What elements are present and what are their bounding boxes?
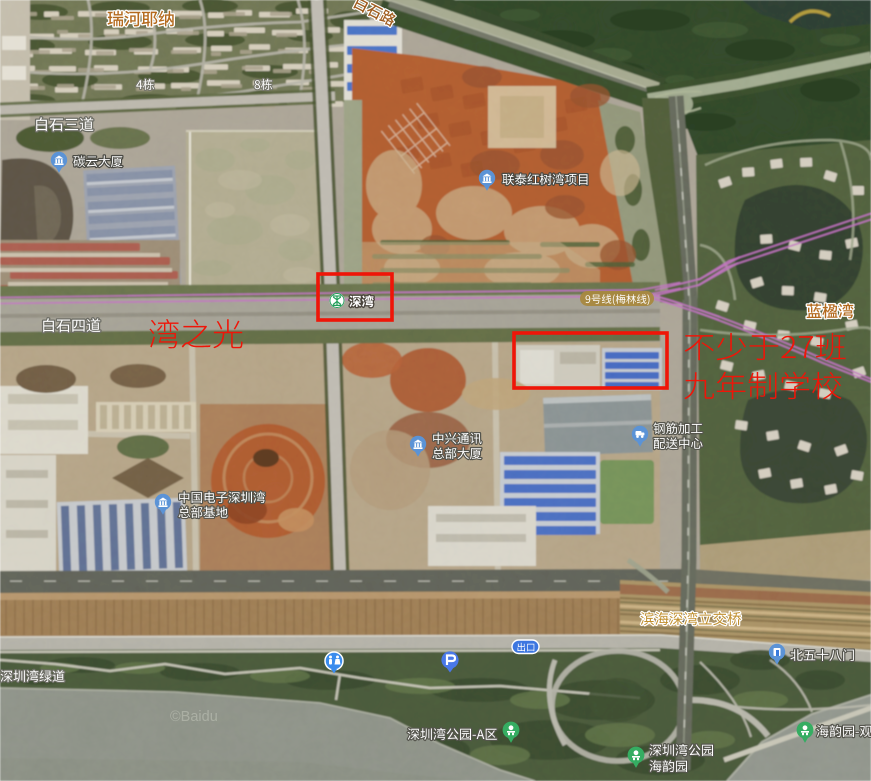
svg-text:©Baidu: ©Baidu [170, 709, 218, 725]
